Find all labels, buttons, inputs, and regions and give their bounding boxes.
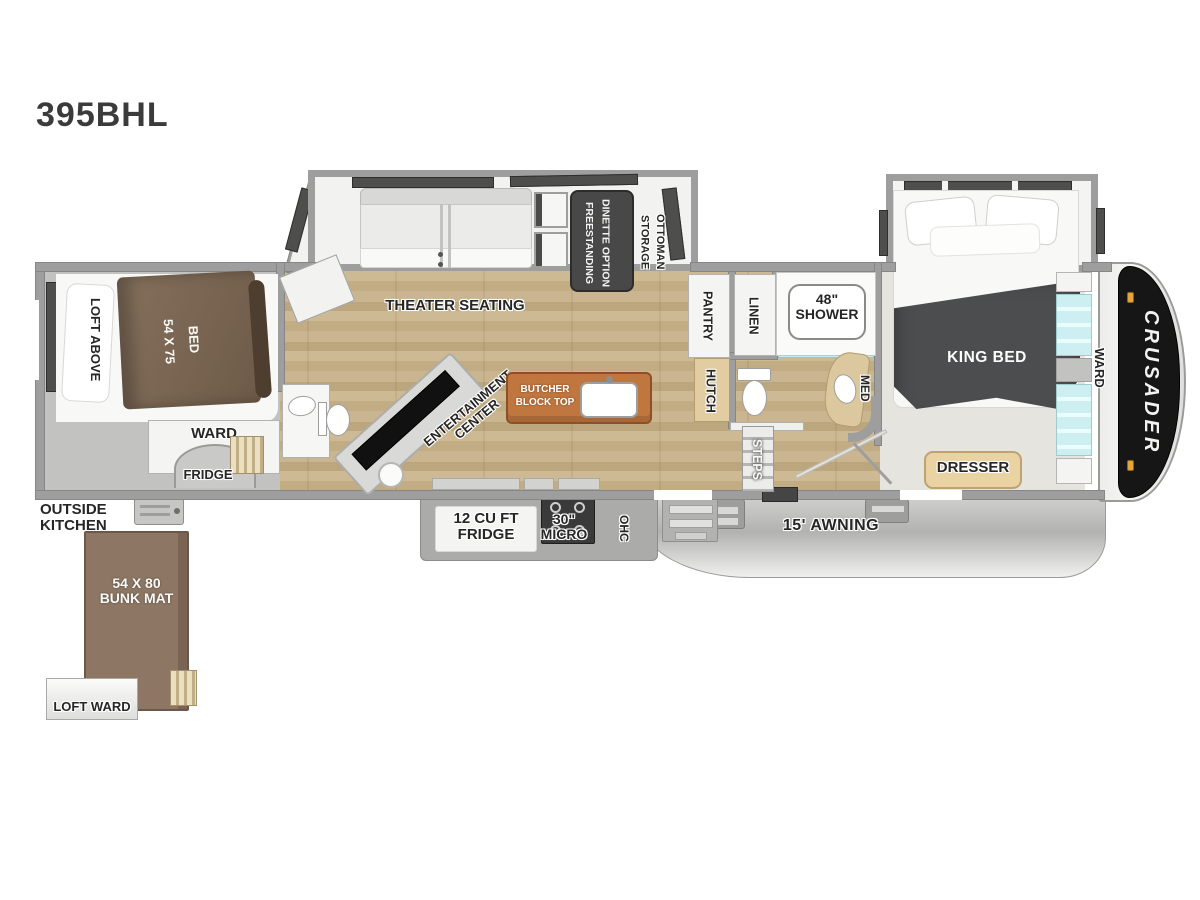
king-bed-label: KING BED [932, 349, 1042, 367]
storage-ottoman-label: STORAGE OTTOMAN [636, 196, 666, 288]
dinette-table: FREESTANDING DINETTE OPTION [570, 190, 634, 292]
floorplan-title: 395BHL [36, 96, 169, 135]
pantry-label: PANTRY [700, 280, 718, 352]
kitchen-island: BUTCHER BLOCK TOP [506, 372, 652, 424]
entry-door-opening [654, 490, 712, 500]
toilet-icon [326, 404, 350, 436]
king-bed: KING BED [893, 190, 1079, 408]
bunk-fridge-label: FRIDGE [168, 468, 248, 482]
crusader-cap-band: CRUSADER [1118, 266, 1180, 498]
wall-top-b [690, 262, 896, 272]
slide-window-icon [1096, 208, 1105, 254]
king-bed-blanket [894, 269, 1080, 409]
clearance-light-icon [1127, 292, 1134, 303]
theater-seating-unit [360, 186, 532, 270]
entry-steps [662, 496, 718, 542]
micro-label: 30" MICRO [533, 512, 595, 542]
shower-label: 48" SHOWER [788, 292, 866, 322]
kitchen-counter [432, 478, 520, 490]
loft-ladder-icon [170, 670, 197, 706]
linen-label: LINEN [746, 282, 764, 350]
dinette-chair [534, 232, 568, 268]
cupholder-icon [438, 262, 443, 267]
bunk-bed-label: 54 X 75 BED [153, 287, 214, 394]
clearance-light-icon [1127, 460, 1134, 471]
bedroom-ward-label: WARD [1092, 330, 1108, 406]
theater-seating-label: THEATER SEATING [380, 298, 530, 314]
floorplan-canvas: 395BHL 15' AWNING 12 CU FT FRIDGE 30" MI… [0, 0, 1200, 900]
pillow-icon [930, 223, 1041, 257]
cupholder-icon [438, 252, 443, 257]
bunk-bed-blanket: 54 X 75 BED [117, 270, 262, 409]
dinette-chair [534, 192, 568, 228]
steps-label: STEPS [750, 430, 766, 488]
sink-icon [580, 382, 638, 418]
kitchen-counter [524, 478, 554, 490]
brand-label: CRUSADER [1139, 281, 1173, 485]
hutch-label: HUTCH [703, 362, 721, 420]
bedroom-ward-mid [1056, 358, 1092, 382]
bedroom-ward-bottom [1056, 458, 1092, 484]
toilet-icon [742, 380, 767, 416]
wall-top-c [1082, 262, 1112, 272]
bedroom-ward-upper [1056, 294, 1092, 356]
ohc-label: OHC [617, 502, 635, 554]
fridge-12cuft-label: 12 CU FT FRIDGE [435, 511, 537, 543]
dinette-label: FREESTANDING DINETTE OPTION [580, 196, 626, 290]
kitchen-counter [558, 478, 600, 490]
outside-kitchen-label: OUTSIDE KITCHEN [40, 502, 152, 534]
wall-left [35, 262, 45, 500]
loft-above-label: LOFT ABOVE [88, 284, 106, 396]
bedroom-window-opening [900, 490, 962, 500]
stool-icon [378, 462, 404, 488]
loft-ward-label: LOFT WARD [42, 700, 142, 714]
island-label: BUTCHER BLOCK TOP [512, 384, 578, 409]
faucet-icon [606, 376, 613, 383]
med-label: MED [858, 360, 873, 416]
awning-label: 15' AWNING [741, 517, 921, 534]
loft-bunk-mat-label: 54 X 80 BUNK MAT [84, 576, 189, 606]
dresser-label: DRESSER [924, 460, 1022, 476]
bedroom-ward-lower [1056, 384, 1092, 456]
bedroom-ward-top [1056, 272, 1092, 292]
slide-window-icon [879, 210, 888, 256]
